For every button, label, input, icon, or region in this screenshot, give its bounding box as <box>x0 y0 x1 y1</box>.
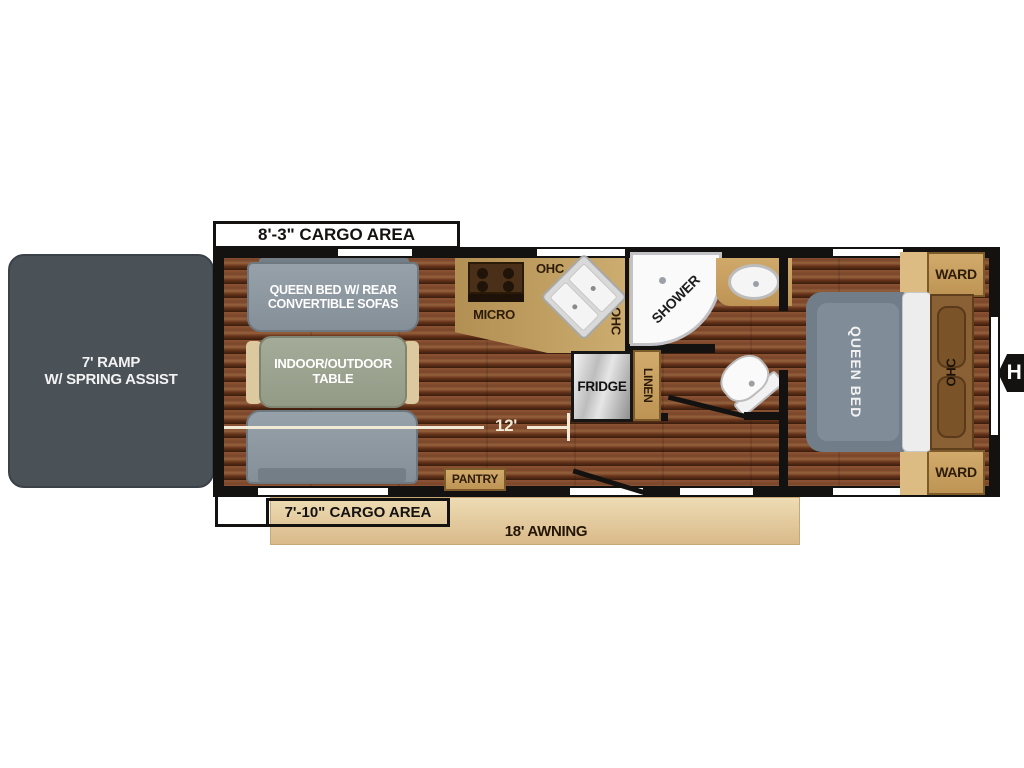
dim-bracket-vertical <box>215 497 218 527</box>
burner <box>503 268 514 279</box>
stove-cooktop <box>468 262 524 294</box>
shower-label: SHOWER <box>633 255 719 343</box>
length-dim-line <box>527 426 569 429</box>
burner <box>503 281 514 292</box>
window <box>833 488 903 495</box>
wall-kitchen-bath <box>625 247 629 347</box>
window <box>258 488 388 495</box>
hitch-label: H <box>1004 354 1024 392</box>
bed-ohc-panel: OHC <box>930 294 974 450</box>
floorplan-canvas: 7' RAMP W/ SPRING ASSIST 8'-3" CARGO ARE… <box>0 0 1024 768</box>
length-dim-label: 12' <box>484 414 528 438</box>
ramp-door: 7' RAMP W/ SPRING ASSIST <box>8 254 214 488</box>
pantry-cabinet: PANTRY <box>444 468 506 491</box>
cargo-area-top-dimension: 8'-3" CARGO AREA <box>213 221 460 249</box>
cargo-top-label: 8'-3" CARGO AREA <box>258 225 415 245</box>
window <box>680 488 753 495</box>
cargo-bottom-label: 7'-10" CARGO AREA <box>285 504 432 521</box>
wardrobe-bottom: WARD <box>927 450 985 495</box>
ramp-label: 7' RAMP W/ SPRING ASSIST <box>10 256 212 486</box>
convertible-sofa-rear: QUEEN BED W/ REAR CONVERTIBLE SOFAS <box>247 262 419 332</box>
wall-bedroom-divider-bottom <box>779 370 788 494</box>
burner <box>477 268 488 279</box>
corner-shelf <box>900 450 927 495</box>
hitch-icon: H <box>998 354 1024 392</box>
dim-bracket-horizontal <box>215 524 268 527</box>
queen-bed-label: QUEEN BED <box>806 292 906 452</box>
drain <box>753 281 759 287</box>
wall-bedroom-divider-top <box>779 247 788 311</box>
linen-cabinet: LINEN <box>633 350 661 421</box>
awning-label: 18' AWNING <box>481 522 611 542</box>
window <box>833 249 903 256</box>
stove-front-panel <box>468 294 524 302</box>
table-label: INDOOR/OUTDOOR TABLE <box>261 338 405 406</box>
fridge-label: FRIDGE <box>574 354 630 419</box>
burner <box>477 281 488 292</box>
dinette-table: INDOOR/OUTDOOR TABLE <box>259 336 407 408</box>
length-dim-line <box>224 426 484 429</box>
micro-label: MICRO <box>462 306 526 324</box>
toilet-flush <box>747 379 755 387</box>
ward-label: WARD <box>929 452 983 493</box>
wall-left <box>213 247 224 497</box>
window <box>991 317 998 435</box>
sofa-backrest <box>258 468 406 482</box>
sofa-label: QUEEN BED W/ REAR CONVERTIBLE SOFAS <box>249 264 417 330</box>
shower: SHOWER <box>630 252 722 346</box>
window <box>338 249 412 256</box>
queen-bed-mattress: QUEEN BED <box>806 292 906 452</box>
bed-pillow <box>902 292 932 452</box>
linen-label: LINEN <box>635 352 659 419</box>
fridge: FRIDGE <box>571 351 633 422</box>
cargo-area-bottom-dimension: 7'-10" CARGO AREA <box>266 498 450 527</box>
bath-sink <box>728 264 780 300</box>
corner-shelf <box>900 252 927 297</box>
length-dim-tick <box>567 413 570 441</box>
ward-label: WARD <box>929 254 983 295</box>
pantry-label: PANTRY <box>446 470 504 489</box>
wardrobe-top: WARD <box>927 252 985 297</box>
bed-ohc-label: OHC <box>932 296 972 448</box>
wall-bath-right <box>744 412 784 420</box>
